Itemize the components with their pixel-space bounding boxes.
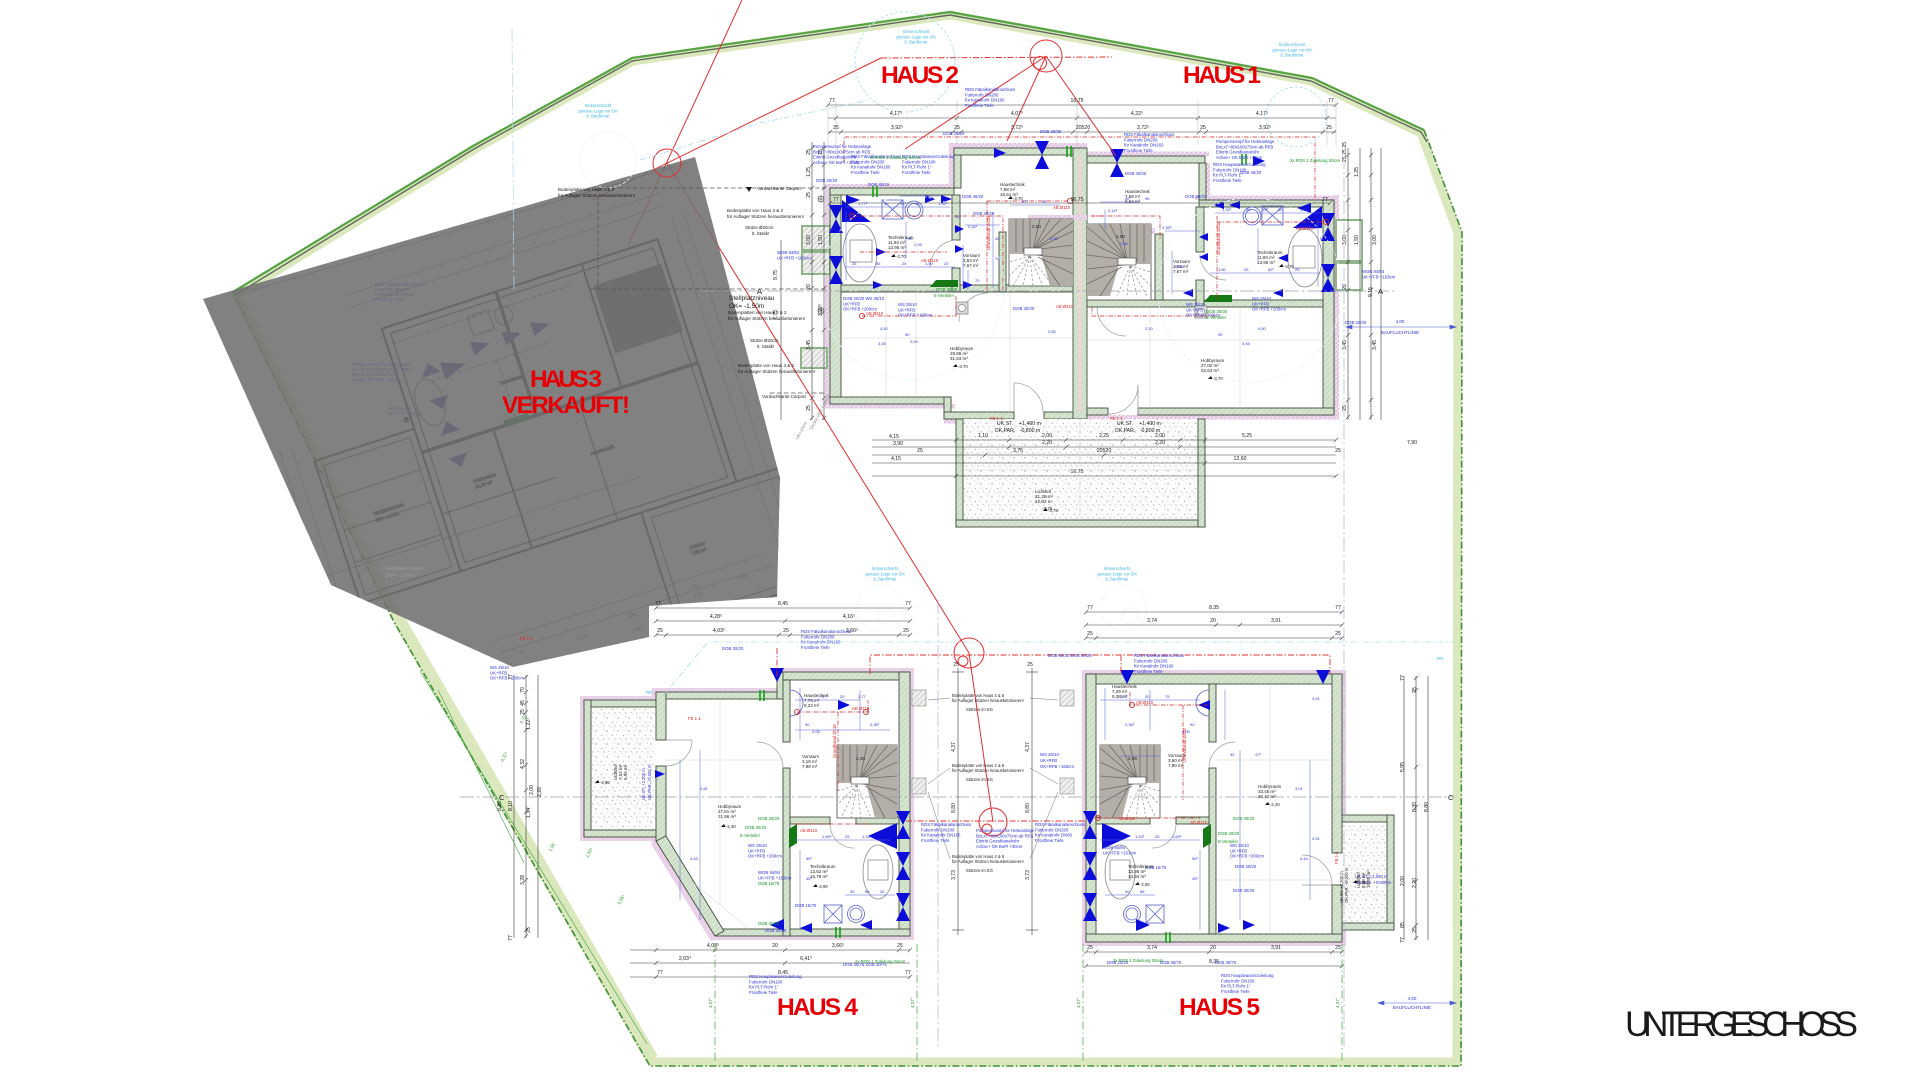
svg-text:für PLT-Rohr 1″: für PLT-Rohr 1″ [749,985,779,990]
svg-text:für PLT-Rohr 1″: für PLT-Rohr 1″ [1213,173,1243,178]
svg-text:OK.PAR.: OK.PAR. [995,428,1016,434]
svg-text:3,73: 3,73 [1025,870,1031,880]
svg-text:OK.PAR. +0,000 m: OK.PAR. +0,000 m [647,764,652,800]
svg-text:2,05: 2,05 [914,242,923,247]
svg-text:DOB 30/20: DOB 30/20 [745,825,767,830]
svg-text:WS 25/10: WS 25/10 [898,302,917,307]
svg-text:2,90: 2,90 [1120,241,1129,246]
svg-text:Achse+ OK BoPl +30cm: Achse+ OK BoPl +30cm [976,844,1023,849]
svg-text:3,45: 3,45 [1372,340,1378,350]
svg-text:Grundkanal Ø110: Grundkanal Ø110 [832,724,837,758]
svg-text:25: 25 [1335,945,1341,951]
svg-text:25: 25 [657,628,663,634]
svg-text:DOB 40/20 DOB 20/20: DOB 40/20 DOB 20/20 [1048,653,1092,658]
svg-text:33⁰: 33⁰ [1262,207,1268,212]
svg-text:HAUS 5: HAUS 5 [1179,994,1260,1021]
svg-text:Eintritt Grundkanalrohr: Eintritt Grundkanalrohr [1216,150,1260,155]
svg-text:77: 77 [829,98,835,104]
svg-text:75: 75 [820,694,825,699]
svg-text:30: 30 [850,889,855,894]
svg-text:25: 25 [845,834,850,839]
svg-text:für Auflager Stützen herausbet: für Auflager Stützen herausbetonieren! [558,193,635,198]
svg-text:16,75: 16,75 [1071,197,1084,203]
svg-text:Frostfreie Tiefe: Frostfreie Tiefe [1124,148,1153,153]
svg-text:56⁰: 56⁰ [806,856,812,861]
svg-text:90: 90 [905,332,910,337]
svg-text:BAUFLUCHTLINIE: BAUFLUCHTLINIE [1393,1005,1431,1010]
svg-text:90: 90 [1190,722,1195,727]
svg-text:25: 25 [1342,405,1348,411]
svg-text:2,00: 2,00 [1042,433,1052,439]
svg-text:C: C [1448,793,1454,802]
svg-text:Bodenplatten von Haus 3 & 2: Bodenplatten von Haus 3 & 2 [728,310,787,315]
svg-text:25: 25 [917,448,923,454]
svg-text:WOB 84/84: WOB 84/84 [758,870,781,875]
svg-text:für Kanalrohr DN160: für Kanalrohr DN160 [965,98,1005,103]
svg-text:Stellplatzniveau: Stellplatzniveau [385,566,424,572]
svg-text:E-Verteiler: E-Verteiler [934,293,955,298]
svg-text:4,00: 4,00 [1396,319,1405,324]
svg-text:3,91: 3,91 [1271,618,1281,624]
svg-text:1,50: 1,50 [1218,267,1227,272]
svg-text:Grundkanal Ø110: Grundkanal Ø110 [986,216,991,250]
svg-text:20: 20 [1042,199,1047,204]
svg-text:25: 25 [783,628,789,634]
svg-text:DOB 40/20: DOB 40/20 [1125,171,1147,176]
svg-text:lt. Baufirma!: lt. Baufirma! [1106,577,1129,582]
svg-text:25: 25 [902,261,907,266]
svg-text:DOB 15/75: DOB 15/75 [795,903,817,908]
svg-text:2,77: 2,77 [1120,694,1129,699]
svg-text:für Kanalrohr DN160: für Kanalrohr DN160 [1134,664,1174,669]
svg-text:30: 30 [884,201,889,206]
svg-text:DOB 20/20: DOB 20/20 [1235,864,1257,869]
svg-text:lt. Statik!: lt. Statik! [752,231,769,236]
svg-text:AB Ø110: AB Ø110 [1136,700,1154,705]
svg-text:Frostfreie Tiefe: Frostfreie Tiefe [749,990,778,995]
svg-text:genaue Lage vor Ort: genaue Lage vor Ort [865,571,905,576]
svg-text:-0,800 m: -0,800 m [1140,428,1160,434]
svg-text:2x ROS 1 Zuleitung Strom: 2x ROS 1 Zuleitung Strom [870,155,921,160]
svg-text:3,45: 3,45 [1342,340,1348,350]
svg-text:96: 96 [1145,196,1150,201]
svg-text:WOB 84/84: WOB 84/84 [777,250,800,255]
svg-text:Stützen im EG: Stützen im EG [966,707,993,712]
svg-text:4,37°: 4,37° [708,997,713,1008]
svg-text:HAUS 1: HAUS 1 [1183,62,1261,89]
svg-text:2,20: 2,20 [1042,440,1052,446]
svg-text:70: 70 [520,687,526,693]
svg-text:3,91: 3,91 [1312,696,1321,701]
svg-text:Sickerschacht: Sickerschacht [903,29,931,34]
svg-text:3,92⁵: 3,92⁵ [891,125,903,131]
svg-text:Sickerschacht: Sickerschacht [585,103,613,108]
svg-text:RR: RR [1437,656,1444,661]
svg-text:25,25,25: 25,25,25 [1342,142,1348,162]
svg-text:20: 20 [1342,284,1348,290]
svg-text:3,72⁵: 3,72⁵ [1011,125,1023,131]
svg-text:Futterrohr DN200: Futterrohr DN200 [1124,137,1158,142]
svg-text:3,91: 3,91 [1271,945,1281,951]
svg-text:UK.ST.: UK.ST. [1117,421,1133,427]
svg-text:1,77⁵: 1,77⁵ [858,201,868,206]
svg-text:1,15⁵: 1,15⁵ [1135,834,1145,839]
svg-text:85: 85 [1400,922,1406,928]
svg-text:2,05: 2,05 [910,339,919,344]
svg-text:Frostfreie Tiefe: Frostfreie Tiefe [902,170,931,175]
svg-text:lt. Baufirma!: lt. Baufirma! [587,114,610,119]
svg-text:3,92⁵: 3,92⁵ [1259,125,1271,131]
svg-text:16,79 m³: 16,79 m³ [810,874,828,879]
svg-text:DOB 20/20: DOB 20/20 [816,178,838,183]
svg-text:OK= -1,50m: OK= -1,50m [729,303,764,310]
svg-text:3,91: 3,91 [1312,836,1321,841]
svg-text:AB Ø110: AB Ø110 [800,828,818,833]
svg-text:3,72⁵: 3,72⁵ [1137,125,1149,131]
svg-text:Futterrohr DN200: Futterrohr DN200 [1134,658,1168,663]
svg-text:VERKAUFT!: VERKAUFT! [502,392,630,419]
svg-text:20: 20 [840,694,845,699]
svg-text:Futterrohr DN100: Futterrohr DN100 [902,159,936,164]
svg-text:für PLT-Rohr 1″: für PLT-Rohr 1″ [902,165,932,170]
svg-text:5,95 m³: 5,95 m³ [623,764,628,780]
svg-text:Frostfreie Tiefe: Frostfreie Tiefe [801,645,830,650]
svg-text:Stellplatzniveau: Stellplatzniveau [729,295,775,302]
svg-text:UK+FFB +163cm: UK+FFB +163cm [1362,274,1396,279]
svg-text:Futterrohr DN200: Futterrohr DN200 [801,634,835,639]
svg-text:25: 25 [953,662,959,668]
svg-text:AB Ø110: AB Ø110 [1053,205,1071,210]
svg-text:3,75: 3,75 [1013,448,1023,454]
svg-text:25: 25 [833,125,839,131]
svg-text:3,28: 3,28 [520,875,526,885]
svg-text:Frostfreie Tiefe: Frostfreie Tiefe [965,103,994,108]
svg-text:8,30: 8,30 [1412,802,1418,812]
svg-text:für Kanalrohr DN160: für Kanalrohr DN160 [851,165,891,170]
svg-text:UK.ST.: UK.ST. [997,421,1013,427]
svg-text:2,20: 2,20 [537,787,543,797]
svg-text:DOB 30/30: DOB 30/30 [1206,309,1228,314]
svg-text:OK+RFB +200cm: OK+RFB +200cm [490,676,524,681]
svg-text:für Auflager Stützen herausbet: für Auflager Stützen herausbetonieren! [738,369,815,374]
svg-text:4,16⁵: 4,16⁵ [843,614,855,620]
svg-text:2,05: 2,05 [1182,729,1191,734]
svg-text:WOB 84/84: WOB 84/84 [1362,269,1385,274]
svg-text:-2,90: -2,90 [1140,882,1150,887]
svg-text:UK+RFB: UK+RFB [1230,848,1247,853]
svg-text:DOB 15/75: DOB 15/75 [758,881,780,886]
svg-text:45: 45 [995,236,1000,241]
svg-text:RDS Fäkalkanalanschluss: RDS Fäkalkanalanschluss [1124,132,1174,137]
svg-text:DOB 20/20: DOB 20/20 [1040,129,1062,134]
svg-text:UK+RFB: UK+RFB [898,307,915,312]
svg-text:UK+RFB +163cm: UK+RFB +163cm [777,255,811,260]
svg-text:2,36: 2,36 [1128,756,1137,761]
svg-text:-2,40: -2,40 [726,824,736,829]
svg-text:12,60: 12,60 [1234,456,1247,462]
svg-text:genaue Lage vor Ort: genaue Lage vor Ort [578,108,618,113]
svg-text:77: 77 [655,601,661,607]
svg-text:4,28⁵: 4,28⁵ [710,614,722,620]
svg-text:1,15⁵: 1,15⁵ [862,834,872,839]
svg-text:DOB 30/30: DOB 30/30 [936,287,958,292]
svg-text:Stützen im EG: Stützen im EG [966,868,993,873]
svg-text:2,00: 2,00 [529,785,535,795]
svg-text:77: 77 [905,970,911,976]
svg-text:UK+RFB: UK+RFB [1186,307,1203,312]
svg-text:BxLxT=80x100x75cm ab RFB: BxLxT=80x100x75cm ab RFB [976,833,1033,838]
svg-text:8,10: 8,10 [508,801,514,811]
svg-text:für PLT-Rohr 1″: für PLT-Rohr 1″ [1221,984,1251,989]
svg-text:66: 66 [865,889,870,894]
svg-text:2x ROS 1 Zuleitung Strom: 2x ROS 1 Zuleitung Strom [1113,958,1164,963]
svg-text:Bodenplatte von Haus 3 & 2: Bodenplatte von Haus 3 & 2 [738,363,795,368]
svg-text:2,36³: 2,36³ [1125,722,1135,727]
svg-text:-3,70: -3,70 [896,254,906,259]
svg-text:2x ROS 1 Zuleitung Strom: 2x ROS 1 Zuleitung Strom [855,959,906,964]
svg-text:OK.PAR. +0,000 m: OK.PAR. +0,000 m [1344,867,1349,903]
svg-text:7,98 m³: 7,98 m³ [802,764,818,769]
svg-text:UK+RFB: UK+RFB [490,670,507,675]
svg-text:AB Ø110: AB Ø110 [1296,226,1314,231]
svg-text:HAUS 4: HAUS 4 [777,994,858,1021]
svg-text:3,66⁵: 3,66⁵ [832,943,844,949]
svg-text:1,32⁵: 1,32⁵ [938,201,948,206]
svg-text:25: 25 [806,192,812,198]
svg-text:4,50: 4,50 [880,326,889,331]
svg-text:56⁰: 56⁰ [1192,856,1198,861]
svg-text:25: 25 [1087,631,1093,637]
svg-text:7,67 m³: 7,67 m³ [963,263,979,268]
svg-text:2,50: 2,50 [1048,329,1057,334]
svg-text:UK+FFB +103cm: UK+FFB +103cm [1103,850,1137,855]
svg-text:RDS Fäkalkanalanschluss: RDS Fäkalkanalanschluss [1035,822,1085,827]
svg-text:20: 20 [772,943,778,949]
svg-text:BxLxT=80x100x75cm ab RFB: BxLxT=80x100x75cm ab RFB [1216,144,1273,149]
svg-text:für Auflager Stützen herausbet: für Auflager Stützen herausbetonieren! [952,859,1024,864]
svg-text:77: 77 [657,970,663,976]
svg-text:Sickerschacht: Sickerschacht [1104,566,1132,571]
svg-text:Frostfreie Tiefe: Frostfreie Tiefe [851,170,880,175]
svg-text:77: 77 [1335,605,1341,611]
svg-text:-2,90: -2,90 [818,884,828,889]
svg-text:77: 77 [1400,675,1406,681]
svg-text:+1,400 m: +1,400 m [1019,421,1041,427]
svg-text:B: B [404,415,409,424]
svg-text:9,75: 9,75 [773,270,779,280]
svg-text:2,30: 2,30 [1145,326,1154,331]
svg-text:90: 90 [805,722,810,727]
svg-text:3,45: 3,45 [878,341,887,346]
svg-text:RDS Hauptwasserzuleitung: RDS Hauptwasserzuleitung [749,974,802,979]
svg-text:3,45: 3,45 [806,340,812,350]
svg-text:RDS Hauptwasserzuleitung: RDS Hauptwasserzuleitung [1213,162,1266,167]
svg-text:90: 90 [1218,332,1223,337]
svg-text:40: 40 [1125,196,1130,201]
svg-text:UK+RFB: UK+RFB [843,301,860,306]
svg-text:Stütze Ø20cm: Stütze Ø20cm [745,225,774,230]
svg-text:Stützen im EG: Stützen im EG [966,777,993,782]
svg-text:25: 25 [1335,448,1341,454]
svg-text:25: 25 [852,261,857,266]
svg-text:für Kanalrohr DN160: für Kanalrohr DN160 [921,833,961,838]
svg-text:1,50: 1,50 [1354,235,1360,245]
svg-text:25: 25 [1087,945,1093,951]
svg-text:FE 1-1: FE 1-1 [688,716,702,721]
svg-text:für Auflager Stützen herausbet: für Auflager Stützen herausbetonieren! [952,698,1024,703]
svg-text:20520: 20520 [1076,125,1091,131]
svg-text:DOB 20/20: DOB 20/20 [765,928,787,933]
svg-text:DOB 30/75: DOB 30/75 [1160,960,1182,965]
svg-text:30: 30 [880,889,885,894]
svg-text:DOB 30/75: DOB 30/75 [1215,960,1237,965]
svg-text:4,15: 4,15 [889,434,899,440]
svg-text:2,20: 2,20 [1412,878,1418,888]
svg-text:Pumpensumpf für Hebeanlage: Pumpensumpf für Hebeanlage [813,144,872,149]
svg-text:4,32: 4,32 [520,759,526,769]
svg-text:30: 30 [916,201,921,206]
svg-text:FE 1-1: FE 1-1 [1334,850,1339,864]
svg-text:8,80: 8,80 [1424,802,1430,812]
svg-text:RDS Fäkalkanalanschluss: RDS Fäkalkanalanschluss [801,629,851,634]
svg-text:2,36: 2,36 [856,756,865,761]
svg-text:90: 90 [908,236,913,241]
svg-text:25: 25 [1326,125,1332,131]
svg-text:20: 20 [1210,618,1216,624]
svg-text:Vordachkante Carport: Vordachkante Carport [757,186,802,191]
svg-text:2,00: 2,00 [1400,876,1406,886]
svg-text:45⁰: 45⁰ [806,876,812,881]
svg-text:22,82 m: 22,82 m [1035,499,1052,504]
svg-text:25: 25 [1027,662,1033,668]
svg-text:FE 1-1: FE 1-1 [990,416,1004,421]
svg-text:FE 1-1: FE 1-1 [1110,416,1124,421]
svg-text:4,17⁵: 4,17⁵ [1256,111,1268,117]
svg-text:25: 25 [1200,125,1206,131]
svg-text:-0,800 m: -0,800 m [1020,428,1040,434]
svg-text:25: 25 [806,405,812,411]
svg-text:OK+RFB +160cm: OK+RFB +160cm [1040,764,1074,769]
svg-text:OK+RFB +200cm: OK+RFB +200cm [1252,307,1286,312]
svg-text:9,15: 9,15 [1368,287,1374,297]
svg-text:UK+RFB: UK+RFB [1252,301,1269,306]
svg-text:4,37: 4,37 [951,742,957,752]
svg-text:4,37°: 4,37° [1076,997,1081,1008]
svg-text:30: 30 [1278,207,1283,212]
svg-text:-3,75: -3,75 [1048,508,1058,513]
svg-text:1,50: 1,50 [925,261,934,266]
svg-text:20: 20 [1145,694,1150,699]
svg-text:DOB 20/20: DOB 20/20 [722,646,744,651]
svg-text:DOB 20/20: DOB 20/20 [758,816,780,821]
svg-text:WS 25/10: WS 25/10 [490,665,509,670]
svg-text:WS 25/10: WS 25/10 [1040,752,1059,757]
svg-text:Frostfreie Tiefe: Frostfreie Tiefe [1134,669,1163,674]
svg-text:22,63 m³: 22,63 m³ [1201,368,1219,373]
svg-text:1,50: 1,50 [818,235,824,245]
svg-text:77: 77 [1087,605,1093,611]
svg-text:4,43: 4,43 [690,856,699,861]
svg-text:E-Verteiler: E-Verteiler [740,833,761,838]
svg-text:2,36⁵: 2,36⁵ [1162,225,1172,230]
svg-text:für Kanalrohr DN160: für Kanalrohr DN160 [1124,143,1164,148]
svg-text:Frostfreie Tiefe: Frostfreie Tiefe [1035,838,1064,843]
svg-text:Pumpensumpf für Hebeanlage: Pumpensumpf für Hebeanlage [1216,139,1275,144]
svg-text:20520: 20520 [1097,448,1112,454]
svg-text:DOB 40/20: DOB 40/20 [1240,170,1262,175]
svg-text:1,32⁵: 1,32⁵ [1222,207,1232,212]
svg-text:25: 25 [897,943,903,949]
svg-text:77: 77 [905,601,911,607]
svg-text:25: 25 [1335,631,1341,637]
svg-text:+1,400 m: +1,400 m [1139,421,1161,427]
svg-text:DOB 30/15: DOB 30/15 [868,182,890,187]
svg-text:77: 77 [1328,98,1334,104]
svg-text:UK+FFB +163cm: UK+FFB +163cm [758,875,792,880]
svg-text:13,95 m³: 13,95 m³ [888,245,906,250]
svg-text:10,30 m³: 10,30 m³ [1366,870,1371,888]
svg-text:-3,70: -3,70 [958,364,968,369]
svg-text:45: 45 [520,700,526,706]
svg-text:7,67 m³: 7,67 m³ [1173,269,1189,274]
svg-text:16,75: 16,75 [1071,98,1084,104]
svg-text:OK+RFB +200cm: OK+RFB +200cm [748,854,782,859]
svg-text:90: 90 [1320,236,1325,241]
svg-text:Futterrohr DN100: Futterrohr DN100 [749,979,783,984]
svg-text:DOB 40/20: DOB 40/20 [962,194,984,199]
svg-text:7,90 m³: 7,90 m³ [1168,763,1184,768]
svg-text:31,63 m³: 31,63 m³ [950,356,968,361]
svg-text:genaue Lage vor Ort: genaue Lage vor Ort [1097,571,1137,576]
svg-text:DOB 30/20: DOB 30/20 [1233,888,1255,893]
svg-text:DOB 20/20: DOB 20/20 [758,921,780,926]
svg-text:14,94 m³: 14,94 m³ [1128,874,1146,879]
svg-text:4,17⁵: 4,17⁵ [890,111,902,117]
svg-text:77: 77 [1400,937,1406,943]
svg-text:WOB 84/84: WOB 84/84 [1103,845,1126,850]
svg-text:DOB 20/20: DOB 20/20 [1218,831,1240,836]
svg-text:2,77: 2,77 [858,694,867,699]
svg-text:Bodenplatte von Haus 3 & 2: Bodenplatte von Haus 3 & 2 [558,187,615,192]
svg-text:25: 25 [1412,927,1418,933]
svg-text:82⁰: 82⁰ [1268,267,1274,272]
svg-text:Sickerschacht: Sickerschacht [872,566,900,571]
svg-text:2,34⁵: 2,34⁵ [968,224,978,229]
svg-text:2x ROS 1 Zuleitung Strom: 2x ROS 1 Zuleitung Strom [1290,158,1341,163]
svg-text:70: 70 [995,256,1000,261]
svg-text:1,22¹: 1,22¹ [526,718,532,730]
svg-text:Futterrohr DN100: Futterrohr DN100 [1221,978,1255,983]
svg-text:AB Ø110: AB Ø110 [1056,304,1074,309]
svg-text:2,25: 2,25 [1099,433,1109,439]
svg-text:33⁰: 33⁰ [900,201,906,206]
svg-text:Sickerschacht: Sickerschacht [1279,42,1307,47]
svg-text:2,50: 2,50 [1050,236,1059,241]
svg-text:für Auflager Stützen herausbet: für Auflager Stützen herausbetonieren! [727,214,804,219]
svg-text:9,23 m³: 9,23 m³ [804,703,820,708]
svg-text:OK+RFB +160cm: OK+RFB +160cm [898,313,932,318]
svg-text:Eintritt Grundkanalrohr: Eintritt Grundkanalrohr [976,839,1020,844]
svg-text:-2,95: -2,95 [600,780,610,785]
svg-text:67⁰: 67⁰ [1022,199,1028,204]
svg-text:DOB 20/20: DOB 20/20 [1185,194,1207,199]
svg-text:OK+RFB +200cm: OK+RFB +200cm [1230,854,1264,859]
svg-text:lt. Baufirma!: lt. Baufirma! [905,40,928,45]
svg-text:47⁰: 47⁰ [1255,752,1261,757]
svg-text:DOB 30/20: DOB 30/20 [1013,306,1035,311]
svg-text:Futterrohr DN200: Futterrohr DN200 [965,92,999,97]
svg-text:77: 77 [508,935,514,941]
